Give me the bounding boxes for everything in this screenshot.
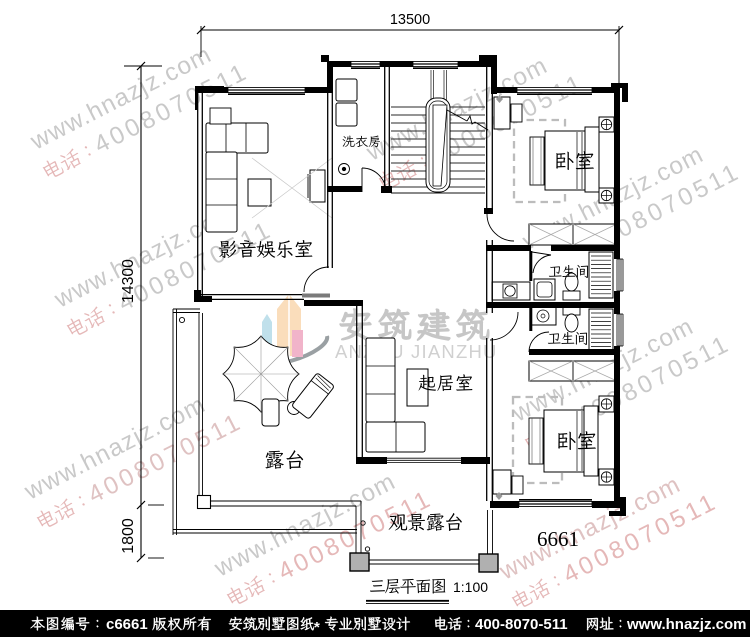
svg-text:1:100: 1:100 — [453, 579, 488, 595]
svg-text:www.hnazjz.com: www.hnazjz.com — [626, 616, 746, 633]
svg-text:400-8070-511: 400-8070-511 — [475, 616, 568, 633]
svg-text:14300: 14300 — [120, 259, 137, 303]
svg-text:c6661: c6661 — [106, 616, 148, 633]
svg-text:13500: 13500 — [390, 12, 430, 28]
svg-text:1800: 1800 — [120, 518, 137, 554]
svg-text:ANZHU JIANZHU: ANZHU JIANZHU — [335, 341, 498, 362]
svg-text:*: * — [314, 619, 320, 636]
svg-text:6661: 6661 — [537, 527, 579, 551]
